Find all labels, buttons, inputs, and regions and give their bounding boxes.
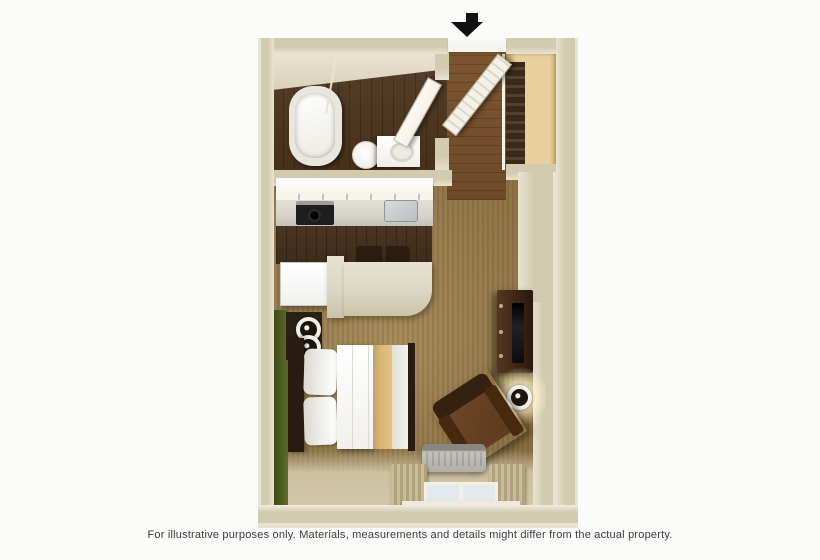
upper-cabinets — [276, 178, 433, 200]
wall-top-left — [258, 38, 448, 54]
entry-threshold — [448, 41, 506, 52]
floor-plan-image: For illustrative purposes only. Material… — [0, 0, 820, 560]
bed-headboard — [288, 338, 304, 452]
breakfast-bar-return — [327, 256, 344, 318]
toilet — [352, 141, 380, 169]
tv — [512, 303, 524, 363]
bed-runner-stripe — [373, 345, 392, 449]
right-bumpout-wall — [518, 172, 556, 304]
kitchen-sink — [384, 200, 418, 222]
bar-stool — [386, 246, 409, 263]
drawer-knob — [499, 354, 503, 358]
wall-left — [258, 38, 274, 528]
bathroom-east-wall-bottom — [435, 138, 449, 172]
curtain — [391, 464, 427, 505]
hanging-clothes — [506, 62, 525, 166]
pillow — [303, 396, 338, 445]
bed-foot-linen — [392, 345, 408, 449]
cooktop-stove — [296, 201, 334, 225]
wall-right — [556, 38, 578, 528]
bathtub — [289, 86, 342, 166]
bed-duvet — [337, 345, 373, 449]
disclaimer-text: For illustrative purposes only. Material… — [0, 529, 820, 541]
burner — [308, 209, 321, 222]
drawer-knob — [499, 330, 503, 334]
bathroom-east-wall-top — [435, 52, 449, 80]
ac-vents — [426, 452, 482, 466]
wall-bottom — [258, 505, 578, 528]
bed-footboard — [408, 343, 415, 451]
ac-unit — [422, 444, 486, 472]
refrigerator — [280, 262, 329, 306]
breakfast-bar — [344, 262, 432, 316]
entry-down-arrow-icon — [451, 22, 483, 37]
drawer-knob — [499, 304, 503, 308]
pillow — [303, 348, 338, 395]
